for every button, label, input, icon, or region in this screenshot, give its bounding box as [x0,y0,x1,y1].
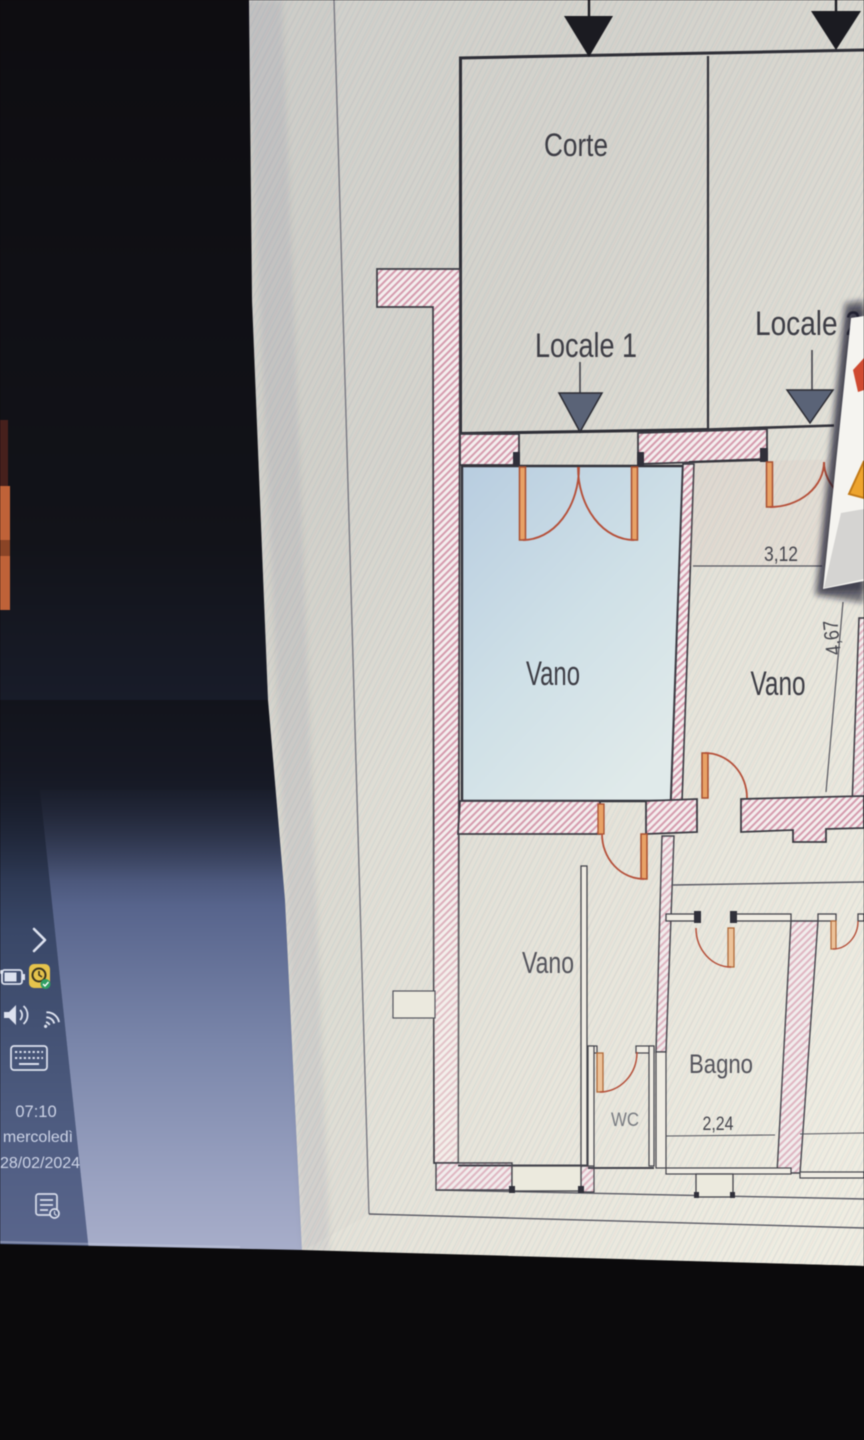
svg-text:Vano: Vano [751,665,806,703]
svg-text:3,12: 3,12 [764,543,798,566]
svg-text:Locale 1: Locale 1 [535,327,637,365]
svg-text:mercoledì: mercoledì [3,1129,73,1146]
svg-text:4,67: 4,67 [819,619,846,656]
svg-text:Bagno: Bagno [689,1049,753,1079]
svg-text:2,24: 2,24 [703,1114,734,1135]
svg-text:WC: WC [611,1110,639,1131]
svg-text:28/02/2024: 28/02/2024 [0,1155,80,1172]
svg-text:Vano: Vano [522,945,574,980]
svg-text:Corte: Corte [544,127,608,163]
svg-text:Vano: Vano [526,655,580,693]
svg-text:07:10: 07:10 [15,1103,56,1121]
